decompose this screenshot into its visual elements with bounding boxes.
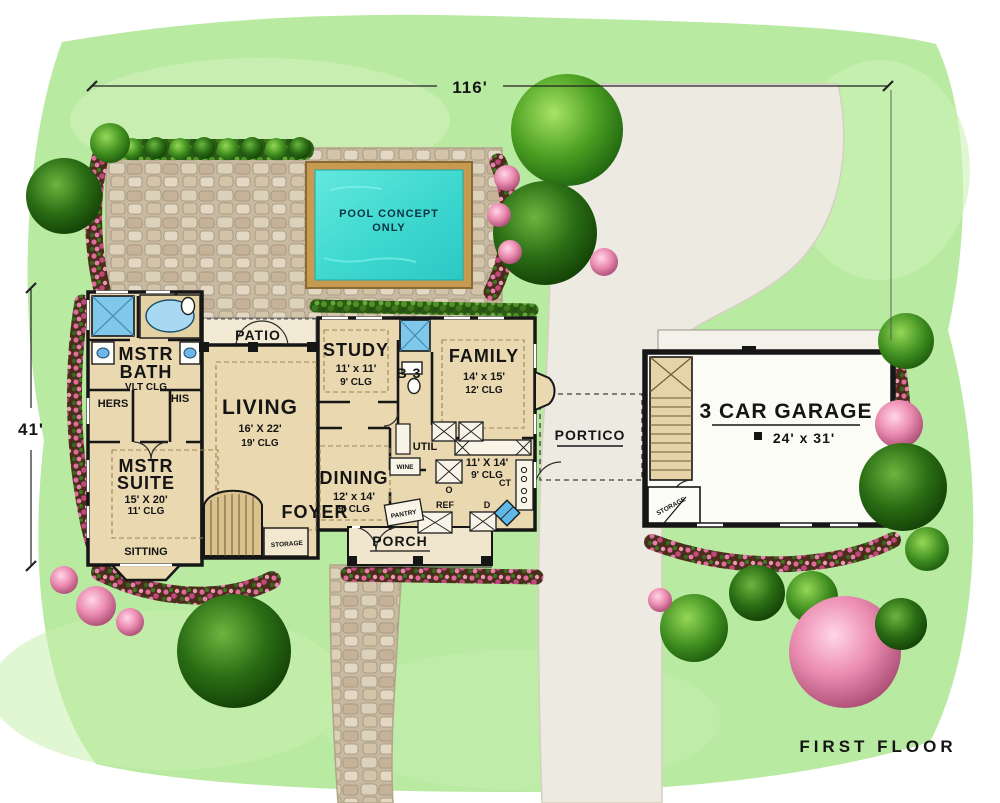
- living-label: LIVING: [222, 396, 298, 419]
- bay-window: [112, 565, 180, 580]
- garage: 3 CAR GARAGE 24' x 31' STORAGE: [645, 330, 893, 525]
- flower-bed: [348, 574, 536, 577]
- porch-label: PORCH: [372, 533, 428, 549]
- flower-bush-icon: [76, 586, 116, 626]
- tree-icon: [878, 313, 934, 369]
- tree-icon: [26, 158, 102, 234]
- mstr-bath-label: MSTR: [119, 344, 174, 364]
- tree-icon: [905, 527, 949, 571]
- tree-icon: [859, 443, 947, 531]
- sitting-label: SITTING: [124, 546, 167, 558]
- wine-label: WINE: [397, 464, 415, 471]
- toilet: [182, 298, 195, 315]
- floor-plan-canvas: POOL CONCEPT ONLY PORTICO: [0, 0, 1000, 803]
- sink: [97, 348, 109, 358]
- ref-label: REF: [436, 500, 455, 510]
- study-size: 11' x 11': [336, 363, 377, 375]
- tree-icon: [729, 565, 785, 621]
- flower-bush-icon: [590, 248, 618, 276]
- garage-stairs: [650, 357, 692, 480]
- patio-label: PATIO: [235, 327, 281, 343]
- dishwasher-label: D: [484, 500, 491, 510]
- family-label: FAMILY: [449, 346, 519, 366]
- study-label: STUDY: [323, 340, 389, 360]
- width-dimension: 116': [452, 78, 487, 97]
- flower-bush-icon: [875, 400, 923, 448]
- cooktop-label: CT: [499, 478, 511, 488]
- bath3-label: B 3: [397, 365, 422, 381]
- hedge-row: [316, 306, 532, 310]
- tree-icon: [493, 181, 597, 285]
- util-label: UTIL: [413, 441, 438, 453]
- mstr-bath-label: BATH: [120, 362, 173, 382]
- sheet-title: FIRST FLOOR: [799, 737, 956, 756]
- oven-label: O: [445, 485, 452, 495]
- living-size: 16' X 22': [238, 423, 282, 435]
- family-clg: 12' CLG: [465, 385, 503, 396]
- hers-label: HERS: [98, 398, 129, 410]
- tree-icon: [90, 123, 130, 163]
- mstr-suite-clg: 11' CLG: [128, 506, 165, 517]
- sink: [184, 348, 196, 358]
- utility-closet: [396, 424, 410, 454]
- flower-bush-icon: [487, 203, 511, 227]
- walkway: [330, 565, 402, 803]
- grass-highlight: [0, 610, 350, 770]
- his-label: HIS: [171, 393, 189, 405]
- portico-label: PORTICO: [555, 427, 626, 443]
- tree-icon: [875, 598, 927, 650]
- floor-plan-drawing: POOL CONCEPT ONLY PORTICO: [0, 0, 1000, 803]
- foyer-label: FOYER: [281, 502, 348, 522]
- garage-label: 3 CAR GARAGE: [699, 400, 872, 423]
- garage-size: 24' x 31': [773, 430, 835, 446]
- dining-label: DINING: [320, 468, 389, 488]
- mstr-suite-label: SUITE: [117, 473, 175, 493]
- flower-bush-icon: [116, 608, 144, 636]
- depth-dimension: 41': [18, 420, 44, 439]
- flower-bush-icon: [50, 566, 78, 594]
- flower-bush-icon: [494, 165, 520, 191]
- mstr-bath-clg: VLT CLG: [125, 382, 167, 393]
- kitchen-size: 11' X 14': [466, 457, 509, 469]
- flower-bush-icon: [498, 240, 522, 264]
- family-size: 14' x 15': [463, 371, 505, 383]
- study-clg: 9' CLG: [340, 377, 372, 388]
- flower-bush-icon: [648, 588, 672, 612]
- mstr-suite-size: 15' X 20': [124, 494, 168, 506]
- tree-icon: [511, 74, 623, 186]
- pool-label: POOL CONCEPT: [339, 208, 439, 220]
- living-clg: 19' CLG: [241, 438, 279, 449]
- tree-icon: [177, 594, 291, 708]
- pool-label: ONLY: [372, 222, 406, 234]
- pool: POOL CONCEPT ONLY: [306, 162, 472, 288]
